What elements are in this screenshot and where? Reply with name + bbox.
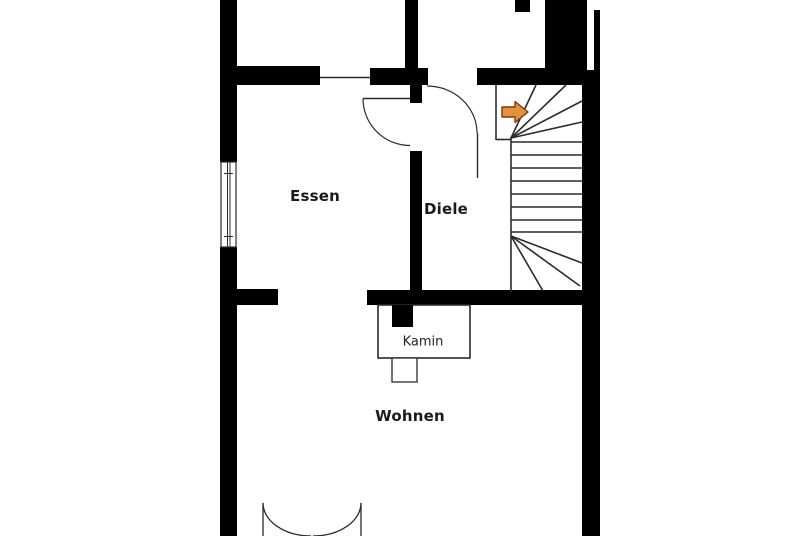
wall-top-mid xyxy=(370,68,428,85)
stair-direction-arrow-icon xyxy=(502,102,528,123)
walls xyxy=(220,0,600,536)
window-icon xyxy=(221,162,236,247)
room-label-essen: Essen xyxy=(290,187,340,205)
wall-divider-stub xyxy=(410,85,422,103)
floorplan-canvas: Essen Diele Wohnen Kamin xyxy=(0,0,800,536)
wall-mid-left-stub xyxy=(237,289,278,305)
wall-left-upper xyxy=(220,0,237,162)
door-swing-diele-icon xyxy=(427,86,478,178)
room-label-wohnen: Wohnen xyxy=(375,407,445,425)
wall-mid-right xyxy=(367,290,600,305)
floorplan-drawing xyxy=(0,0,800,536)
kamin-flue-stub xyxy=(392,305,413,327)
wall-top-left xyxy=(237,66,320,85)
wall-left-lower xyxy=(220,247,237,536)
wall-top-right-block xyxy=(545,0,587,77)
wall-upper-vertical xyxy=(405,0,418,68)
room-label-diele: Diele xyxy=(424,200,468,218)
wall-top-right-strip xyxy=(594,10,600,77)
fixture-label-kamin: Kamin xyxy=(403,335,444,350)
wall-divider-lower xyxy=(410,151,422,305)
double-door-swing-icon xyxy=(263,503,361,536)
wall-top-notch xyxy=(515,0,530,12)
door-swing-essen-icon xyxy=(363,99,410,146)
